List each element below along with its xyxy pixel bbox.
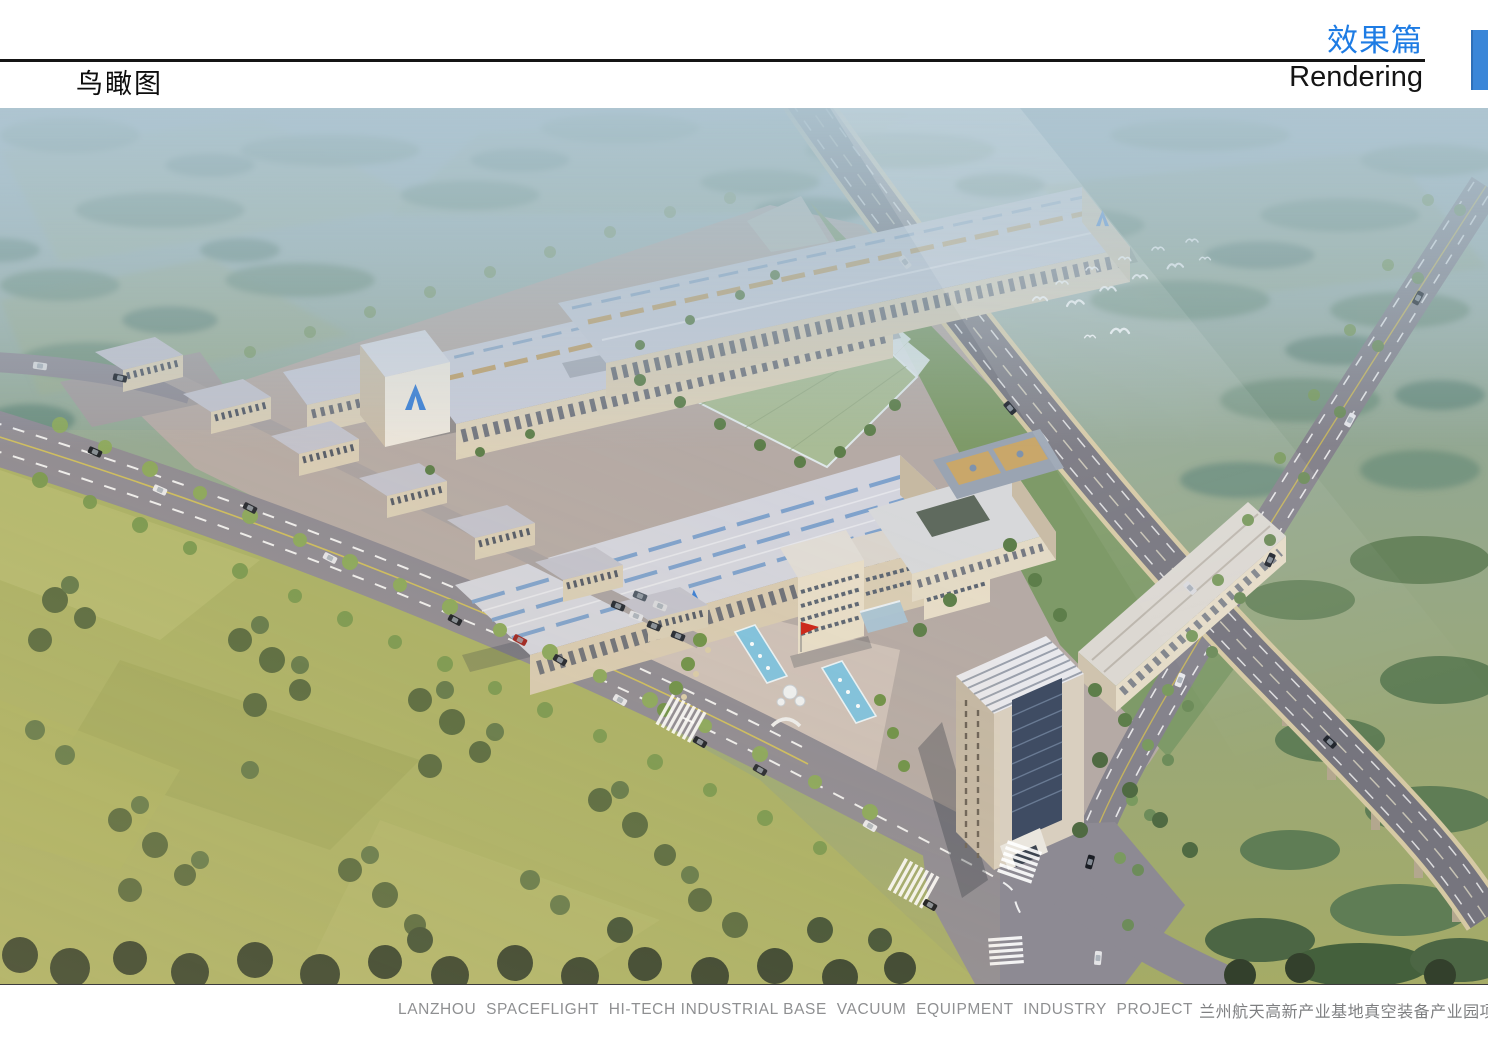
section-title-en: Rendering xyxy=(1289,62,1423,93)
aerial-rendering xyxy=(0,108,1488,984)
page-title: 鸟瞰图 xyxy=(76,62,163,101)
project-caption: LANZHOU SPACEFLIGHT HI-TECH INDUSTRIAL B… xyxy=(398,998,1488,1022)
presentation-page: 效果篇 Rendering 鸟瞰图 xyxy=(0,0,1488,1052)
header-rule xyxy=(0,59,1425,62)
haze-overlay xyxy=(0,108,1488,448)
caption-english: LANZHOU SPACEFLIGHT HI-TECH INDUSTRIAL B… xyxy=(398,1001,1193,1019)
caption-chinese: 兰州航天高新产业基地真空装备产业园项目 xyxy=(1199,998,1488,1022)
warm-light-overlay xyxy=(0,430,1000,984)
section-title-zh: 效果篇 xyxy=(1327,24,1423,58)
section-tab-marker xyxy=(1471,30,1488,90)
aerial-rendering-image xyxy=(0,108,1488,985)
